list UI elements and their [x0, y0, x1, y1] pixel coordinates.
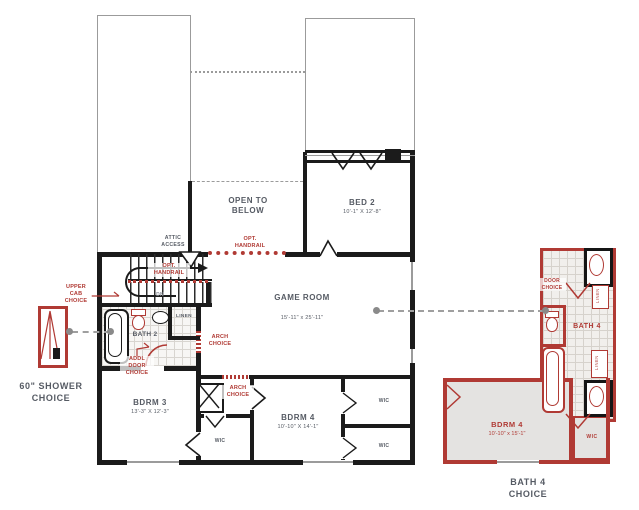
- option-label-bdrm4: BDRM 4: [471, 420, 543, 429]
- room-dims-bdrm4: 10'-10" X 14'-1": [262, 424, 334, 431]
- option-label-arch-choice-2: ARCH CHOICE: [222, 385, 254, 399]
- stair-arrow-head: [198, 263, 208, 273]
- room-label-linen: LINEN: [170, 314, 198, 320]
- option-label-bath4: BATH 4: [566, 323, 608, 330]
- room-dims-bdrm3: 13'-3" X 12'-3": [113, 409, 187, 416]
- room-dims-game-room: 15'-11" x 25'-11": [267, 315, 337, 322]
- option-label-opt-handrail: OPT. HANDRAIL: [148, 263, 190, 277]
- door-swing-icon: [566, 414, 590, 428]
- room-label-open-to-below: OPEN TO BELOW: [215, 196, 281, 217]
- stair-dn-label: DN: [152, 292, 168, 298]
- door-swing-icon: [206, 416, 224, 427]
- door-swing-icon: [343, 393, 356, 413]
- room-label-game-room: GAME ROOM: [272, 293, 332, 303]
- room-label-wic: WIC: [372, 443, 396, 449]
- option-label-door-choice: DOOR CHOICE: [538, 278, 566, 291]
- option-dims-bdrm4: 10'-10" x 15'-1": [471, 431, 543, 437]
- door-swing-icon: [447, 385, 460, 409]
- option-label-addl-door: ADDL DOOR CHOICE: [120, 356, 154, 377]
- connector-dot: [107, 328, 114, 335]
- option-connector: [378, 310, 544, 312]
- door-swing-icon: [566, 283, 590, 298]
- room-label-bed2: BED 2: [327, 198, 397, 208]
- option-label-wic: WIC: [578, 434, 606, 440]
- leader-line: [91, 292, 119, 296]
- floor-plan: OPEN TO BELOW BED 2 10'-1" X 12'-8" GAME…: [0, 0, 639, 510]
- caption-shower-choice: 60" SHOWER CHOICE: [8, 380, 94, 404]
- attic-access-label: ATTIC ACCESS: [153, 235, 193, 248]
- room-dims-bed2: 10'-1" X 12'-8": [327, 209, 397, 216]
- option-connector: [72, 331, 110, 333]
- option-label-linen: LINEN: [594, 353, 604, 373]
- door-swing-icon: [186, 433, 200, 456]
- room-label-wic: WIC: [208, 438, 232, 444]
- option-label-upper-cab: UPPER CAB CHOICE: [60, 284, 92, 305]
- door-swing-icon: [332, 153, 382, 169]
- connector-dot: [66, 328, 73, 335]
- option-label-arch-choice: ARCH CHOICE: [204, 334, 236, 348]
- connector-dot: [373, 307, 380, 314]
- plan-linework: [0, 0, 639, 510]
- connector-dot: [542, 307, 549, 314]
- room-label-bdrm4: BDRM 4: [262, 413, 334, 423]
- door-swing-icon: [320, 241, 337, 256]
- option-label-linen: LINEN: [595, 287, 605, 305]
- shower-drain-icon: [53, 348, 60, 359]
- room-label-wic: WIC: [372, 398, 396, 404]
- room-label-bath2: BATH 2: [122, 331, 168, 339]
- door-swing-icon: [343, 438, 356, 458]
- option-label-opt-handrail-2: OPT. HANDRAIL: [228, 236, 272, 250]
- caption-bath4-choice: BATH 4 CHOICE: [494, 476, 562, 500]
- chase-x-icon: [199, 384, 219, 408]
- leader-line: [137, 343, 149, 357]
- room-label-bdrm3: BDRM 3: [113, 398, 187, 408]
